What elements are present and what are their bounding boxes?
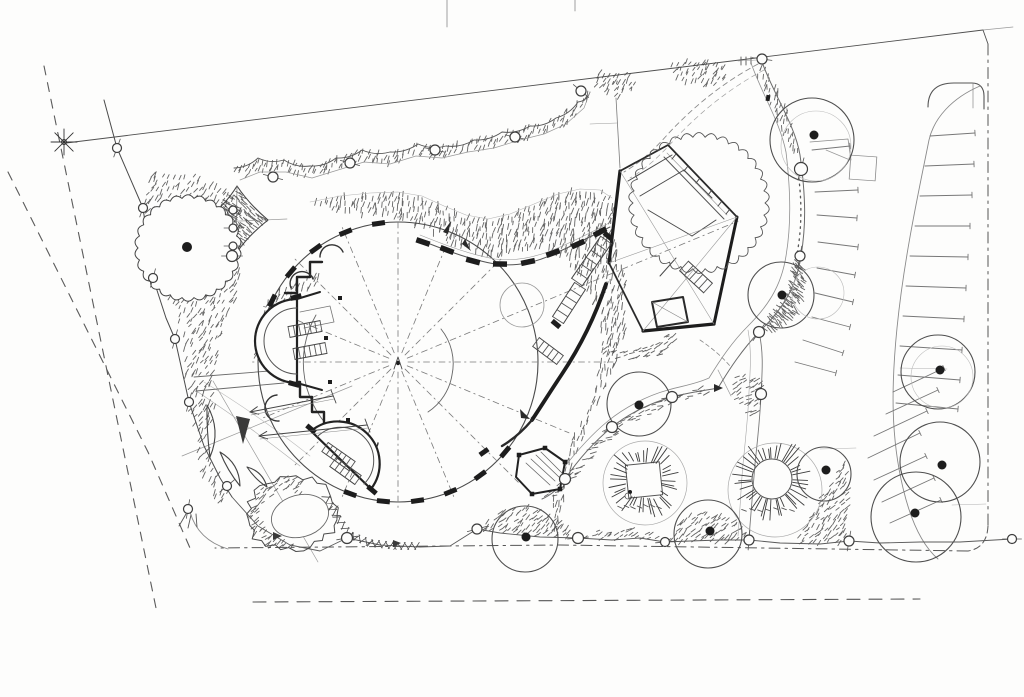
vestibule-posts: [530, 492, 535, 497]
tree-dot: [936, 366, 945, 375]
tree-dot: [706, 527, 715, 536]
tree-dot: [911, 509, 920, 518]
tree-dot: [822, 466, 831, 475]
tree-dot: [810, 131, 819, 140]
gate-post: [757, 54, 767, 64]
fence-post: [342, 533, 353, 544]
hall-columns: [328, 380, 332, 384]
hedge-post: [576, 86, 586, 96]
tree-dot: [938, 461, 947, 470]
drive-post: [756, 389, 767, 400]
hedge-post: [430, 145, 440, 155]
fence-post: [113, 144, 122, 153]
shade-node: [229, 242, 237, 250]
fence-post: [171, 335, 180, 344]
hall-columns: [338, 296, 342, 300]
drive-post: [560, 474, 571, 485]
tree-scalloped-dot: [182, 242, 192, 252]
scanned-site-plan-page: [0, 0, 1024, 697]
north-wall-chunks: [493, 261, 507, 267]
drive-post: [754, 327, 765, 338]
fence-post: [149, 274, 158, 283]
fence-post: [1008, 535, 1017, 544]
fence-post: [185, 398, 194, 407]
tree-dot: [778, 291, 787, 300]
fence-post: [472, 524, 482, 534]
parking-stall-hook: [850, 143, 851, 149]
site-plan-drawing: [0, 0, 1024, 697]
drive-post: [795, 163, 808, 176]
planting-tip-post: [184, 505, 193, 514]
shade-node: [229, 206, 237, 214]
shade-node: [229, 224, 237, 232]
hedge-post: [345, 158, 355, 168]
fence-post: [661, 538, 670, 547]
fence-post: [744, 535, 754, 545]
parking-stall-hook: [958, 406, 959, 412]
corner-post: [223, 482, 232, 491]
tree-dot: [522, 533, 531, 542]
hedge-post: [268, 172, 278, 182]
drive-post: [667, 392, 678, 403]
vestibule-posts: [543, 446, 548, 451]
vestibule-posts: [558, 487, 563, 492]
fence-post: [844, 536, 854, 546]
fence-post: [573, 533, 584, 544]
hedge-post: [510, 132, 520, 142]
vestibule-posts: [517, 453, 522, 458]
drive-post: [795, 251, 805, 261]
fence-post: [139, 204, 148, 213]
tree-dot: [635, 401, 644, 410]
shade-node: [227, 251, 238, 262]
hall-columns: [324, 336, 328, 340]
drive-post: [607, 422, 618, 433]
paper-background: [0, 0, 1024, 697]
vestibule-posts: [563, 460, 568, 465]
